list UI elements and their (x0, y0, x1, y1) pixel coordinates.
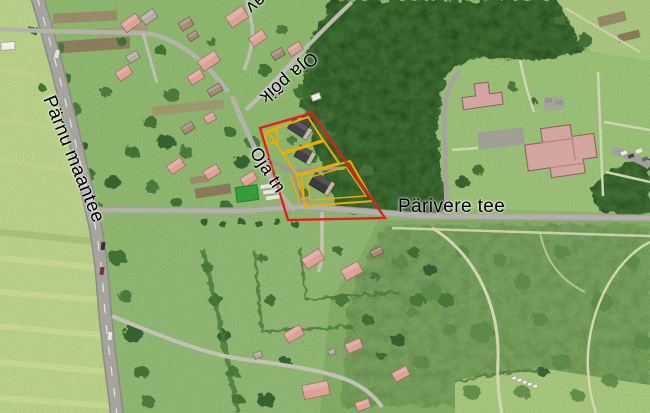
road-label-parivere-tee: Pärivere tee (398, 197, 505, 216)
aerial-map-viewport[interactable]: Pärnu maantee Oja põik Oja tn Pärivere t… (0, 0, 650, 413)
